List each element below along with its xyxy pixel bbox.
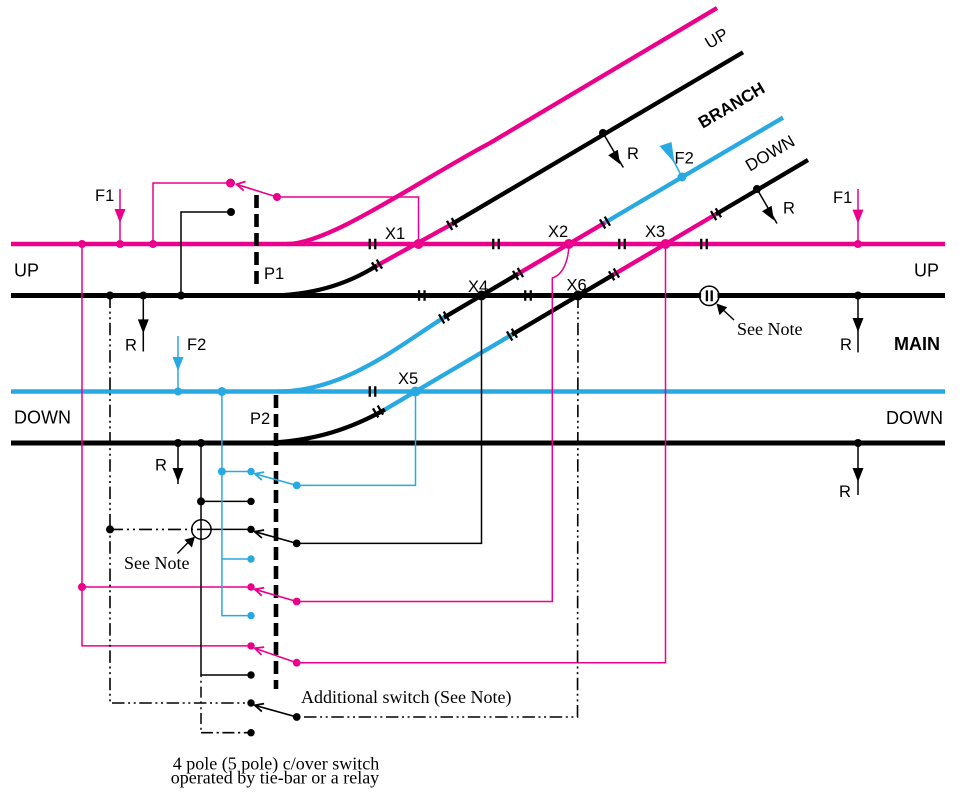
svg-text:F1: F1 — [833, 189, 852, 207]
svg-text:R: R — [839, 483, 851, 501]
svg-text:See Note: See Note — [124, 553, 189, 573]
svg-text:DOWN: DOWN — [14, 408, 71, 428]
svg-text:R: R — [155, 457, 167, 475]
svg-text:DOWN: DOWN — [886, 408, 943, 428]
svg-text:operated by tie-bar or a relay: operated by tie-bar or a relay — [171, 768, 379, 788]
svg-text:X6: X6 — [567, 277, 587, 295]
svg-text:X5: X5 — [398, 370, 418, 388]
svg-text:MAIN: MAIN — [894, 334, 940, 354]
svg-text:F1: F1 — [95, 187, 114, 205]
svg-text:BRANCH: BRANCH — [695, 79, 768, 133]
svg-text:UP: UP — [914, 261, 939, 281]
svg-text:Additional switch (See Note): Additional switch (See Note) — [301, 687, 511, 708]
svg-text:P1: P1 — [264, 265, 284, 283]
svg-text:R: R — [840, 336, 852, 354]
svg-text:X2: X2 — [548, 223, 568, 241]
svg-text:See Note: See Note — [737, 319, 802, 339]
svg-text:UP: UP — [702, 24, 732, 52]
svg-text:X4: X4 — [468, 278, 488, 296]
svg-text:R: R — [627, 145, 639, 163]
svg-text:UP: UP — [14, 261, 39, 281]
svg-text:F2: F2 — [187, 336, 206, 354]
svg-text:R: R — [783, 200, 795, 218]
svg-text:R: R — [125, 337, 137, 355]
svg-text:X3: X3 — [645, 223, 665, 241]
svg-text:X1: X1 — [385, 225, 405, 243]
svg-text:F2: F2 — [675, 150, 694, 168]
svg-text:P2: P2 — [250, 410, 270, 428]
